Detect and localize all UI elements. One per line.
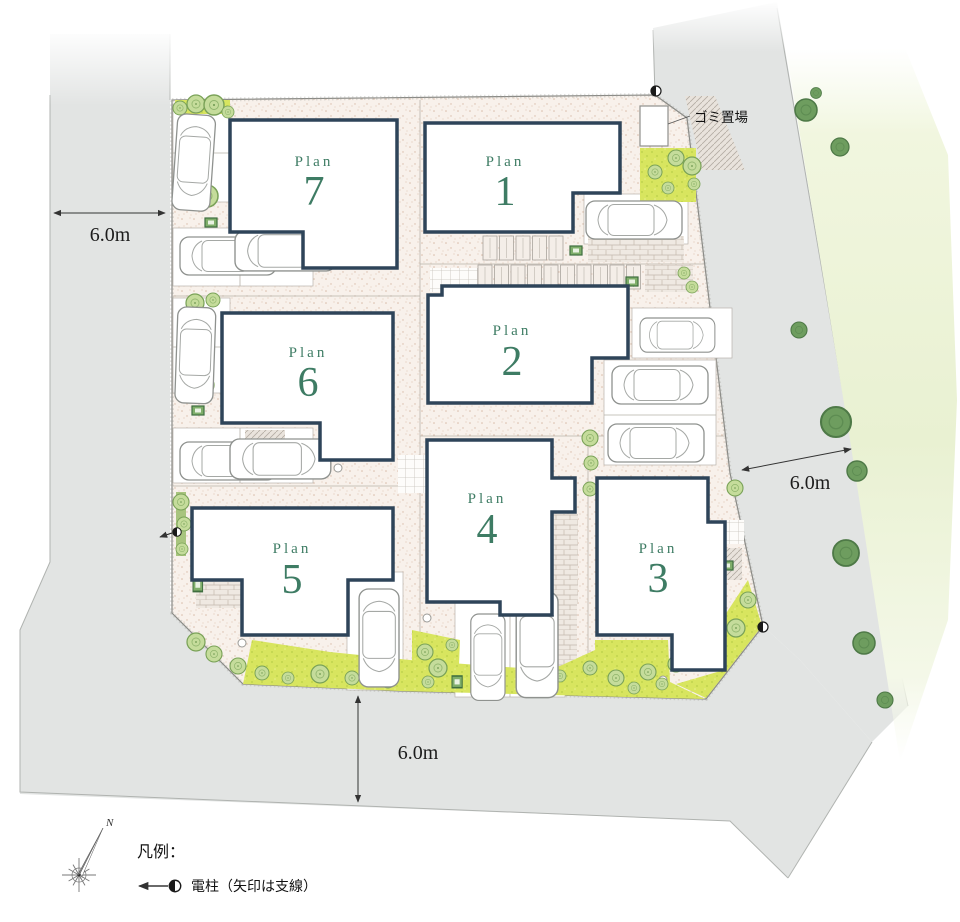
- tree-icon: [795, 99, 817, 121]
- tree-icon: [831, 138, 849, 156]
- car-icon: [171, 113, 216, 211]
- legend-pole-label: 電柱（矢印は支線）: [191, 879, 317, 895]
- plan-2-label: Plan: [493, 323, 532, 339]
- plan-7-number: 7: [304, 169, 325, 215]
- tree-icon: [821, 407, 851, 437]
- north-label: N: [105, 817, 114, 829]
- utility-pole-icon: [651, 86, 661, 96]
- car-icon: [640, 318, 715, 352]
- plan-6-label: Plan: [289, 345, 328, 361]
- bottom-road-dimension: 6.0m: [398, 742, 439, 764]
- utility-pole-icon: [758, 622, 768, 632]
- car-icon: [230, 439, 331, 479]
- car-icon: [359, 589, 399, 687]
- car-icon: [175, 307, 216, 404]
- right-road-dimension: 6.0m: [790, 472, 831, 494]
- tree-icon: [853, 632, 875, 654]
- legend: N 凡例： 電柱（矢印は支線）: [62, 817, 317, 895]
- car-icon: [612, 366, 708, 404]
- plan-2-number: 2: [502, 339, 523, 385]
- tree-icon: [811, 88, 822, 99]
- plan-5-label: Plan: [273, 541, 312, 557]
- site-plan-drawing: Plan 1 Plan 2 Plan 3 Plan 4 Plan 5 Plan …: [0, 0, 960, 922]
- car-icon: [608, 424, 704, 462]
- plan-4-label: Plan: [468, 491, 507, 507]
- garbage-label: ゴミ置場: [694, 109, 748, 125]
- legend-pole-icon: [169, 880, 181, 892]
- plan-7-label: Plan: [295, 154, 334, 170]
- legend-title: 凡例：: [137, 843, 185, 861]
- plan-4-house: [427, 440, 575, 615]
- utility-pole-icon: [173, 528, 182, 537]
- tree-icon: [833, 540, 859, 566]
- tree-icon: [791, 322, 807, 338]
- plan-1-label: Plan: [486, 154, 525, 170]
- left-road-dimension: 6.0m: [90, 224, 131, 246]
- plan-3-label: Plan: [639, 541, 678, 557]
- tree-icon: [847, 461, 867, 481]
- car-icon: [471, 614, 505, 700]
- plan-5-number: 5: [282, 557, 303, 603]
- plan-6-number: 6: [298, 360, 319, 406]
- site-plan: Plan 1 Plan 2 Plan 3 Plan 4 Plan 5 Plan …: [0, 0, 960, 922]
- compass-icon: [62, 828, 103, 892]
- plan-1-number: 1: [495, 169, 516, 215]
- car-icon: [586, 201, 682, 239]
- plan-3-number: 3: [648, 556, 669, 602]
- plan-4-number: 4: [477, 507, 498, 553]
